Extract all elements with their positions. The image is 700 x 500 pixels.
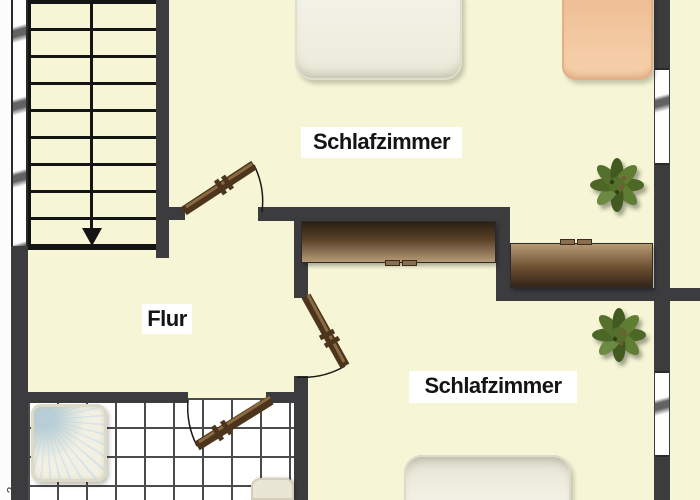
room-label-schlafzimmer-top: Schlafzimmer bbox=[301, 127, 462, 158]
door bbox=[297, 295, 345, 377]
floor-plan: Schlafzimmer Flur Schlafzimmer 2 bbox=[0, 0, 700, 500]
doors-layer bbox=[0, 0, 700, 500]
room-label-flur: Flur bbox=[142, 304, 192, 334]
room-label-schlafzimmer-bottom: Schlafzimmer bbox=[409, 371, 577, 403]
corner-mark: 2 bbox=[5, 487, 17, 494]
door bbox=[188, 397, 271, 446]
door bbox=[184, 164, 263, 212]
